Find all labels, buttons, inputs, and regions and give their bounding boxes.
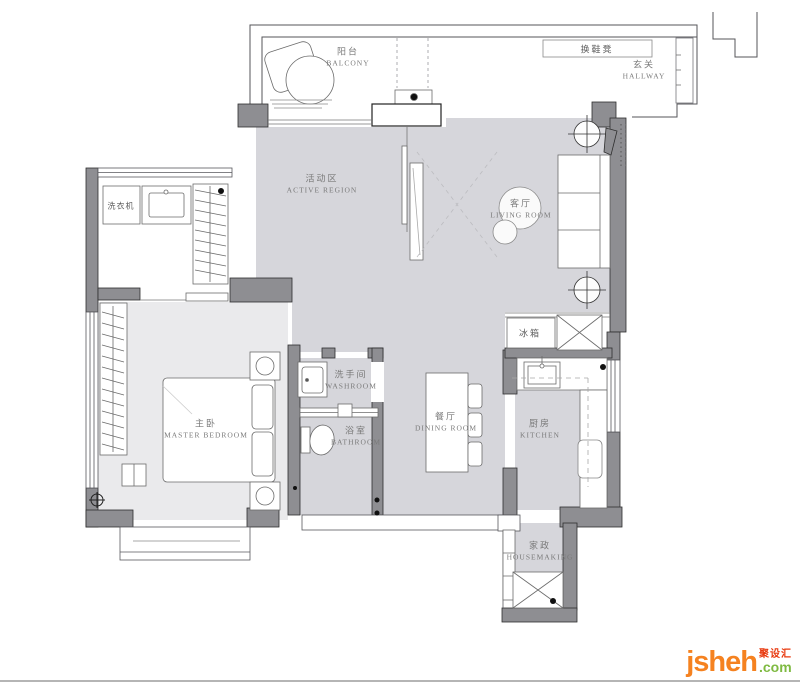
shoe-cabinet-icon xyxy=(543,38,693,103)
cooktop-icon xyxy=(578,440,602,478)
fridge-box xyxy=(507,318,555,348)
bedroom-sliding-door xyxy=(140,293,228,301)
washing-machine-box xyxy=(103,186,140,224)
wardrobe-icon xyxy=(100,303,127,455)
fridge-cabinet-icon xyxy=(505,313,610,350)
floorplan-page: 阳台BALCONY 玄关HALLWAY 活动区ACTIVE REGION 客厅L… xyxy=(0,0,800,682)
balcony-chair-icon xyxy=(263,40,334,108)
bedroom-bay-window xyxy=(120,527,250,560)
logo-name-text: jsheh xyxy=(686,651,757,674)
bottom-threshold xyxy=(302,515,503,530)
sofa-icon xyxy=(558,155,610,268)
jsheh-logo: jsheh 聚设汇 .com xyxy=(686,650,792,674)
dining-table-icon xyxy=(426,373,482,472)
cloak-closet-icon xyxy=(193,184,228,284)
floorplan-drawing xyxy=(0,0,800,682)
shoe-bench-box xyxy=(543,40,652,57)
utility-sink-icon xyxy=(142,186,191,224)
logo-tld-text: .com xyxy=(759,660,792,674)
bath-door-gap xyxy=(371,362,384,402)
washbasin-icon xyxy=(298,362,327,397)
